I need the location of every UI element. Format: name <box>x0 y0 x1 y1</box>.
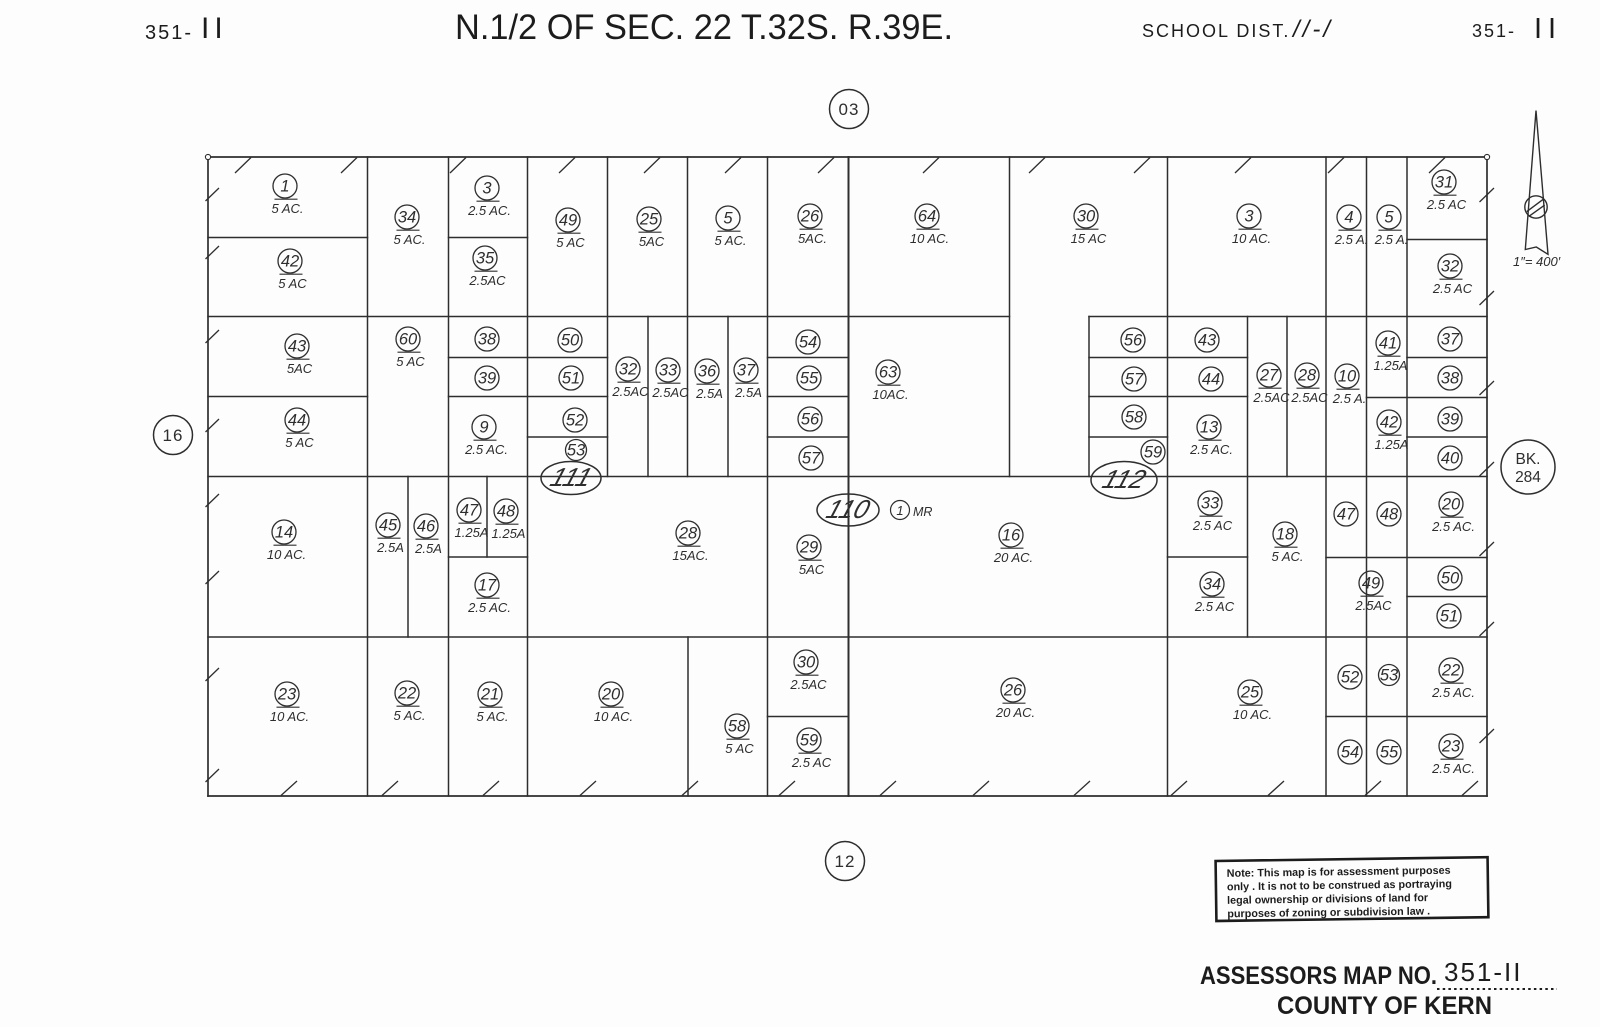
svg-text:9: 9 <box>479 419 488 437</box>
svg-text:28: 28 <box>1297 367 1317 385</box>
svg-text:47: 47 <box>1337 506 1356 524</box>
svg-text:ASSESSORS MAP NO.: ASSESSORS MAP NO. <box>1200 962 1437 990</box>
svg-text:5 AC.: 5 AC. <box>393 708 425 723</box>
svg-text:2.5AC: 2.5AC <box>651 385 689 400</box>
svg-text:34: 34 <box>1203 576 1221 594</box>
svg-text:32: 32 <box>619 361 637 379</box>
svg-text:5AC: 5AC <box>287 361 313 376</box>
svg-text:38: 38 <box>1441 370 1460 388</box>
svg-text:10 AC.: 10 AC. <box>910 231 949 246</box>
svg-text:2.5 AC: 2.5 AC <box>1194 599 1235 614</box>
svg-text:5AC.: 5AC. <box>798 231 827 246</box>
svg-text:50: 50 <box>1441 570 1460 588</box>
svg-text:2.5AC: 2.5AC <box>1290 390 1328 405</box>
svg-text:37: 37 <box>1441 331 1460 349</box>
svg-text:2.5 AC.: 2.5 AC. <box>1189 442 1233 457</box>
svg-text:48: 48 <box>497 503 516 521</box>
svg-text:25: 25 <box>639 211 659 229</box>
svg-text:10 AC.: 10 AC. <box>270 709 309 724</box>
svg-text:5 AC: 5 AC <box>396 354 425 369</box>
svg-text:2.5A: 2.5A <box>376 540 404 555</box>
svg-text:10 AC.: 10 AC. <box>267 547 306 562</box>
svg-text:2.5A: 2.5A <box>734 385 762 400</box>
svg-text:56: 56 <box>801 411 820 429</box>
svg-text:63: 63 <box>879 364 898 382</box>
svg-text:2.5 A.: 2.5 A. <box>1374 232 1408 247</box>
svg-text:2.5 AC.: 2.5 AC. <box>1431 761 1475 776</box>
svg-text:54: 54 <box>799 334 817 352</box>
svg-text:51: 51 <box>562 370 580 388</box>
svg-text:43: 43 <box>1198 332 1217 350</box>
svg-text:MR: MR <box>913 505 932 519</box>
svg-text:2.5 AC: 2.5 AC <box>1432 281 1473 296</box>
svg-text:10 AC.: 10 AC. <box>1232 231 1271 246</box>
svg-text:31: 31 <box>1435 174 1453 192</box>
svg-text:46: 46 <box>417 518 436 536</box>
svg-text:5AC: 5AC <box>639 234 665 249</box>
svg-text:20 AC.: 20 AC. <box>995 705 1035 720</box>
svg-text:43: 43 <box>288 338 307 356</box>
svg-text:2.5AC: 2.5AC <box>468 273 506 288</box>
svg-text:15AC.: 15AC. <box>672 548 708 563</box>
svg-text:33: 33 <box>659 362 678 380</box>
svg-text:351-II: 351-II <box>1444 957 1523 987</box>
svg-text:3: 3 <box>1244 208 1254 226</box>
svg-text:27: 27 <box>1259 367 1279 385</box>
svg-text:30: 30 <box>1077 208 1096 226</box>
svg-text:2.5 AC: 2.5 AC <box>1192 518 1233 533</box>
svg-text:39: 39 <box>1441 411 1459 429</box>
svg-text:5 AC.: 5 AC. <box>1271 549 1303 564</box>
svg-text:10AC.: 10AC. <box>872 387 908 402</box>
svg-text:20: 20 <box>601 686 621 704</box>
svg-text:34: 34 <box>398 209 416 227</box>
svg-text:2.5AC: 2.5AC <box>1252 390 1290 405</box>
svg-text:16: 16 <box>1002 527 1021 545</box>
svg-text:58: 58 <box>1125 409 1144 427</box>
svg-text:64: 64 <box>918 208 936 226</box>
svg-text:12: 12 <box>835 852 856 871</box>
svg-text:351-: 351- <box>1472 21 1516 41</box>
svg-text:59: 59 <box>800 732 818 750</box>
svg-text:5: 5 <box>1384 209 1394 227</box>
svg-text:2.5AC: 2.5AC <box>1354 598 1392 613</box>
svg-text:1.25A: 1.25A <box>492 526 526 541</box>
svg-text:5 AC: 5 AC <box>725 741 754 756</box>
svg-text:26: 26 <box>1003 682 1023 700</box>
svg-text:37: 37 <box>737 362 756 380</box>
svg-text:36: 36 <box>698 363 717 381</box>
svg-text:2.5 AC.: 2.5 AC. <box>467 600 511 615</box>
svg-text:49: 49 <box>559 212 577 230</box>
svg-text:47: 47 <box>460 502 479 520</box>
svg-text:52: 52 <box>566 412 584 430</box>
svg-text:2.5 AC: 2.5 AC <box>791 755 832 770</box>
svg-text:5 AC.: 5 AC. <box>271 201 303 216</box>
svg-text:BK.: BK. <box>1516 451 1541 468</box>
svg-text:20: 20 <box>1441 496 1461 514</box>
svg-text:57: 57 <box>802 450 821 468</box>
svg-text:41: 41 <box>1379 335 1397 353</box>
svg-text:56: 56 <box>1124 332 1143 350</box>
svg-text:28: 28 <box>678 525 698 543</box>
svg-text:23: 23 <box>277 686 297 704</box>
svg-text:54: 54 <box>1341 744 1359 762</box>
svg-text:53: 53 <box>1380 667 1399 685</box>
svg-text:48: 48 <box>1380 506 1399 524</box>
svg-text:58: 58 <box>728 718 747 736</box>
svg-text:5 AC.: 5 AC. <box>714 233 746 248</box>
svg-text:35: 35 <box>476 250 495 268</box>
svg-text:284: 284 <box>1515 469 1541 486</box>
svg-text:SCHOOL DIST.: SCHOOL DIST. <box>1142 21 1290 41</box>
svg-text:4: 4 <box>1344 209 1353 227</box>
svg-text:18: 18 <box>1276 526 1295 544</box>
svg-text:17: 17 <box>478 577 497 595</box>
svg-text:10 AC.: 10 AC. <box>594 709 633 724</box>
svg-text:30: 30 <box>797 654 816 672</box>
svg-text:2.5 AC.: 2.5 AC. <box>1431 519 1475 534</box>
svg-text:45: 45 <box>379 517 398 535</box>
svg-text:50: 50 <box>561 332 580 350</box>
svg-text:2.5AC: 2.5AC <box>611 384 649 399</box>
svg-text:14: 14 <box>275 524 293 542</box>
svg-text:5 AC.: 5 AC. <box>476 709 508 724</box>
svg-text:03: 03 <box>839 100 860 119</box>
svg-text:1″= 400′: 1″= 400′ <box>1513 254 1561 269</box>
svg-text:22: 22 <box>397 685 416 703</box>
svg-text:42: 42 <box>1380 414 1398 432</box>
svg-text:1.25A: 1.25A <box>1375 437 1409 452</box>
svg-text:32: 32 <box>1441 258 1459 276</box>
svg-text:2.5 AC: 2.5 AC <box>1426 197 1467 212</box>
svg-text:COUNTY OF KERN: COUNTY OF KERN <box>1277 992 1492 1020</box>
svg-text:II: II <box>1534 13 1562 45</box>
svg-text:16: 16 <box>163 426 184 445</box>
svg-text:29: 29 <box>799 539 818 557</box>
svg-text:57: 57 <box>1125 371 1144 389</box>
svg-text://-/: //-/ <box>1291 16 1333 43</box>
svg-text:5 AC: 5 AC <box>285 435 314 450</box>
svg-text:1.25A: 1.25A <box>1374 358 1408 373</box>
svg-text:20 AC.: 20 AC. <box>993 550 1033 565</box>
svg-text:II: II <box>201 12 228 45</box>
svg-text:52: 52 <box>1341 669 1359 687</box>
svg-text:5AC: 5AC <box>799 562 825 577</box>
svg-text:44: 44 <box>1202 371 1220 389</box>
svg-text:1: 1 <box>280 178 289 196</box>
svg-text:10 AC.: 10 AC. <box>1233 707 1272 722</box>
svg-text:2.5AC: 2.5AC <box>789 677 827 692</box>
svg-text:10: 10 <box>1338 368 1357 386</box>
svg-text:21: 21 <box>480 686 499 704</box>
svg-text:59: 59 <box>1144 444 1162 462</box>
svg-text:55: 55 <box>1380 744 1399 762</box>
svg-text:13: 13 <box>1200 419 1219 437</box>
svg-text:22: 22 <box>1441 662 1460 680</box>
svg-text:25: 25 <box>1240 684 1260 702</box>
svg-text:5 AC.: 5 AC. <box>393 232 425 247</box>
svg-text:55: 55 <box>800 370 819 388</box>
svg-text:5 AC: 5 AC <box>278 276 307 291</box>
svg-text:3: 3 <box>482 180 492 198</box>
svg-text:53: 53 <box>567 442 586 460</box>
svg-text:5: 5 <box>723 210 733 228</box>
svg-text:51: 51 <box>1440 608 1458 626</box>
svg-text:38: 38 <box>478 331 497 349</box>
svg-text:2.5 AC.: 2.5 AC. <box>1431 685 1475 700</box>
svg-text:351-: 351- <box>145 22 193 44</box>
svg-text:42: 42 <box>281 253 299 271</box>
svg-text:2.5A: 2.5A <box>695 386 723 401</box>
svg-text:1: 1 <box>896 503 903 518</box>
svg-text:2.5 A.: 2.5 A. <box>1334 232 1368 247</box>
svg-text:N.1/2 OF SEC. 22 T.32S. R.3: N.1/2 OF SEC. 22 T.32S. R.39E. <box>455 8 953 47</box>
svg-text:2.5A: 2.5A <box>414 541 442 556</box>
svg-text:40: 40 <box>1441 450 1460 468</box>
svg-text:2.5 AC.: 2.5 AC. <box>464 442 508 457</box>
svg-text:33: 33 <box>1201 495 1220 513</box>
svg-text:1.25A: 1.25A <box>455 525 489 540</box>
svg-text:2.5 A.: 2.5 A. <box>1332 391 1366 406</box>
svg-text:44: 44 <box>288 412 306 430</box>
svg-text:26: 26 <box>800 208 820 226</box>
svg-text:49: 49 <box>1362 575 1380 593</box>
svg-text:23: 23 <box>1441 738 1461 756</box>
svg-text:60: 60 <box>399 331 418 349</box>
svg-text:39: 39 <box>478 370 496 388</box>
svg-text:5 AC: 5 AC <box>556 235 585 250</box>
svg-text:15 AC: 15 AC <box>1071 231 1107 246</box>
svg-text:2.5 AC.: 2.5 AC. <box>467 203 511 218</box>
